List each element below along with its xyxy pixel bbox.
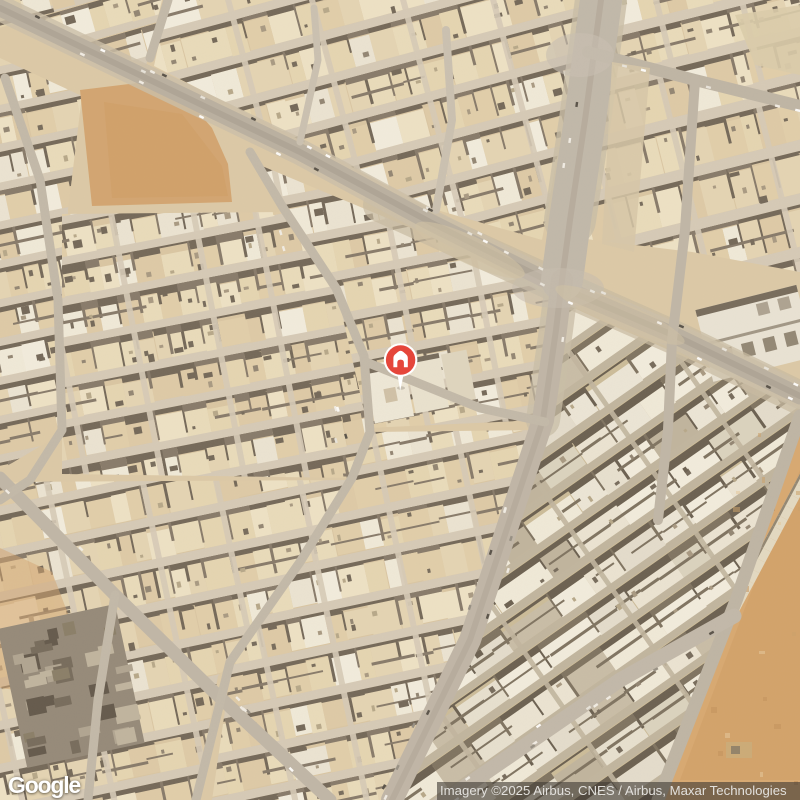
svg-text:Imagery ©2025 Airbus, CNES / A: Imagery ©2025 Airbus, CNES / Airbus, Max… — [440, 783, 787, 798]
svg-text:Google: Google — [8, 772, 80, 798]
